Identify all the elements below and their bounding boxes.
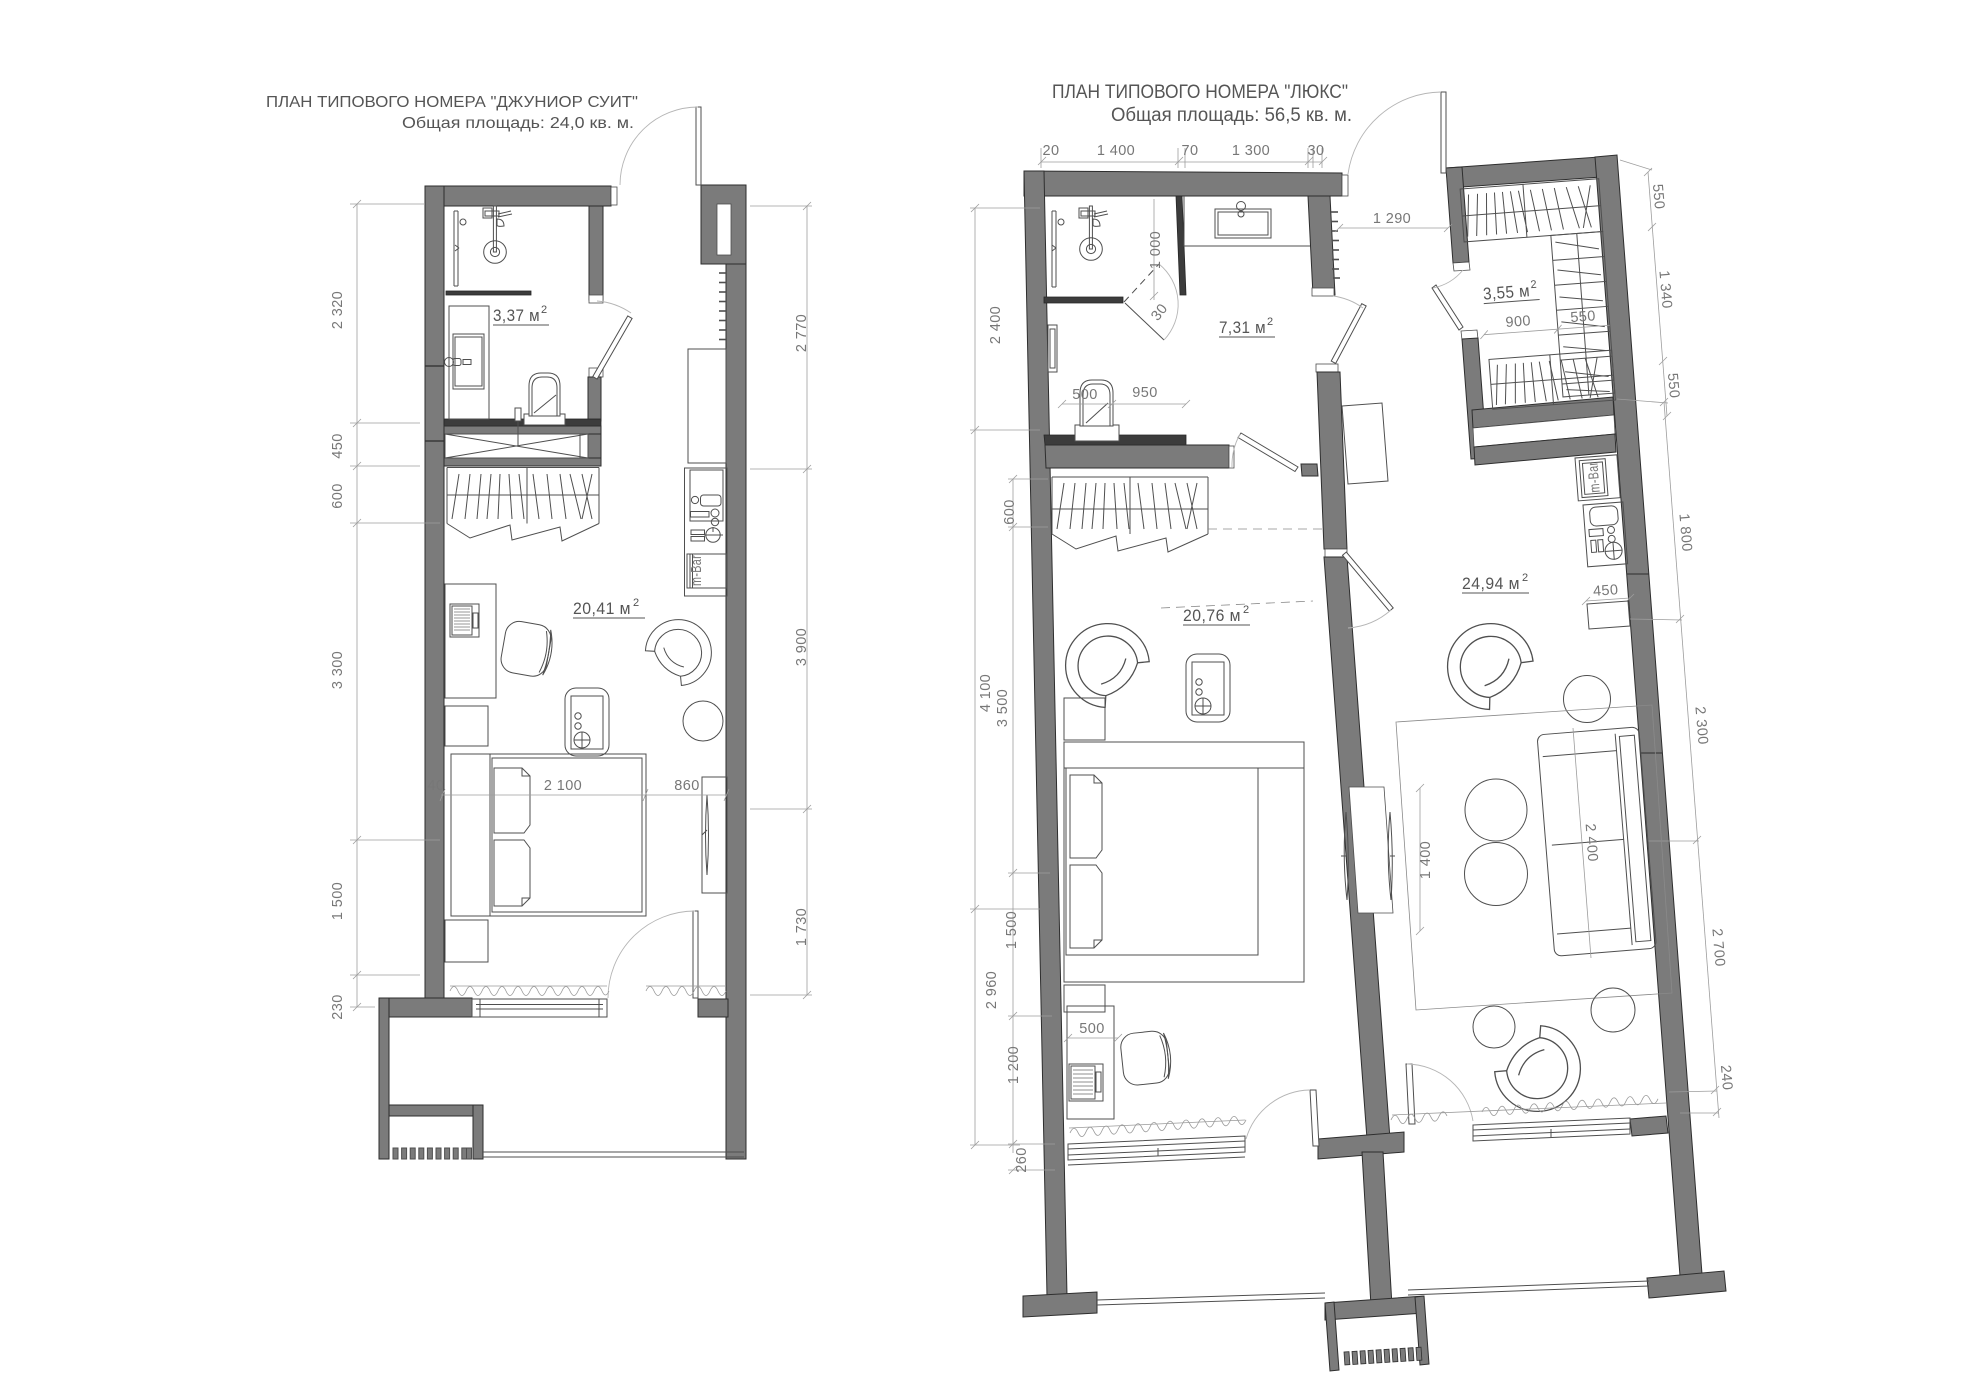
svg-text:2 400: 2 400 (988, 306, 1004, 344)
svg-text:40: 40 (428, 778, 445, 794)
svg-text:3,37 м: 3,37 м (493, 306, 540, 325)
svg-text:2 100: 2 100 (544, 778, 582, 794)
svg-text:2: 2 (1243, 604, 1249, 616)
svg-text:2: 2 (633, 597, 639, 609)
svg-text:1 730: 1 730 (794, 908, 810, 946)
svg-text:2: 2 (1530, 279, 1537, 291)
svg-text:ПЛАН ТИПОВОГО НОМЕРА "ЛЮКС": ПЛАН ТИПОВОГО НОМЕРА "ЛЮКС" (1052, 82, 1348, 103)
svg-text:1 000: 1 000 (1148, 231, 1164, 269)
svg-text:950: 950 (1132, 385, 1157, 401)
svg-text:2: 2 (541, 304, 547, 316)
svg-text:1 340: 1 340 (1655, 270, 1674, 310)
svg-text:1 500: 1 500 (330, 882, 346, 920)
svg-text:ПЛАН ТИПОВОГО НОМЕРА "ДЖУНИОР: ПЛАН ТИПОВОГО НОМЕРА "ДЖУНИОР СУИТ" (266, 94, 638, 111)
svg-text:3 500: 3 500 (995, 689, 1011, 727)
svg-text:20,41 м: 20,41 м (573, 599, 631, 618)
svg-text:7,31 м: 7,31 м (1219, 318, 1266, 337)
svg-text:550: 550 (1664, 372, 1682, 399)
svg-text:3 300: 3 300 (330, 651, 346, 689)
svg-text:240: 240 (1717, 1064, 1735, 1091)
svg-text:2 770: 2 770 (794, 314, 810, 352)
svg-text:2: 2 (1267, 316, 1273, 328)
svg-text:230: 230 (330, 994, 346, 1019)
svg-text:2 320: 2 320 (330, 291, 346, 329)
svg-text:500: 500 (1072, 387, 1097, 403)
svg-text:Общая площадь: 24,0 кв. м.: Общая площадь: 24,0 кв. м. (402, 115, 634, 132)
svg-text:450: 450 (1592, 582, 1618, 600)
svg-text:2 960: 2 960 (984, 971, 1000, 1009)
svg-text:1 200: 1 200 (1006, 1046, 1022, 1084)
svg-text:1 500: 1 500 (1004, 911, 1020, 949)
svg-text:900: 900 (1505, 313, 1532, 331)
svg-text:2: 2 (1522, 572, 1528, 584)
svg-text:500: 500 (1079, 1021, 1104, 1037)
svg-text:30: 30 (1308, 143, 1325, 159)
svg-text:4 100: 4 100 (978, 674, 994, 712)
svg-text:260: 260 (1014, 1147, 1030, 1172)
svg-text:1 800: 1 800 (1675, 513, 1694, 553)
svg-text:600: 600 (1002, 499, 1018, 524)
svg-text:2 400: 2 400 (1582, 823, 1601, 862)
svg-text:24,94 м: 24,94 м (1462, 574, 1520, 593)
svg-text:m-Bar: m-Bar (1585, 461, 1603, 493)
svg-text:2 700: 2 700 (1708, 928, 1727, 968)
svg-text:20: 20 (1043, 143, 1060, 159)
svg-text:550: 550 (1649, 183, 1667, 210)
svg-text:Общая площадь: 56,5 кв. м.: Общая площадь: 56,5 кв. м. (1111, 105, 1352, 126)
svg-text:20,76 м: 20,76 м (1183, 606, 1241, 625)
svg-text:3 900: 3 900 (794, 628, 810, 666)
svg-text:860: 860 (674, 778, 699, 794)
svg-text:1 400: 1 400 (1097, 143, 1135, 159)
svg-text:70: 70 (1182, 143, 1199, 159)
svg-text:450: 450 (330, 433, 346, 458)
svg-text:1 290: 1 290 (1373, 211, 1411, 227)
svg-text:600: 600 (330, 483, 346, 508)
svg-text:2 300: 2 300 (1691, 706, 1710, 746)
svg-text:1 300: 1 300 (1232, 143, 1270, 159)
svg-text:550: 550 (1570, 308, 1597, 326)
svg-text:m-Bar: m-Bar (689, 555, 705, 586)
svg-text:1 400: 1 400 (1418, 841, 1434, 879)
